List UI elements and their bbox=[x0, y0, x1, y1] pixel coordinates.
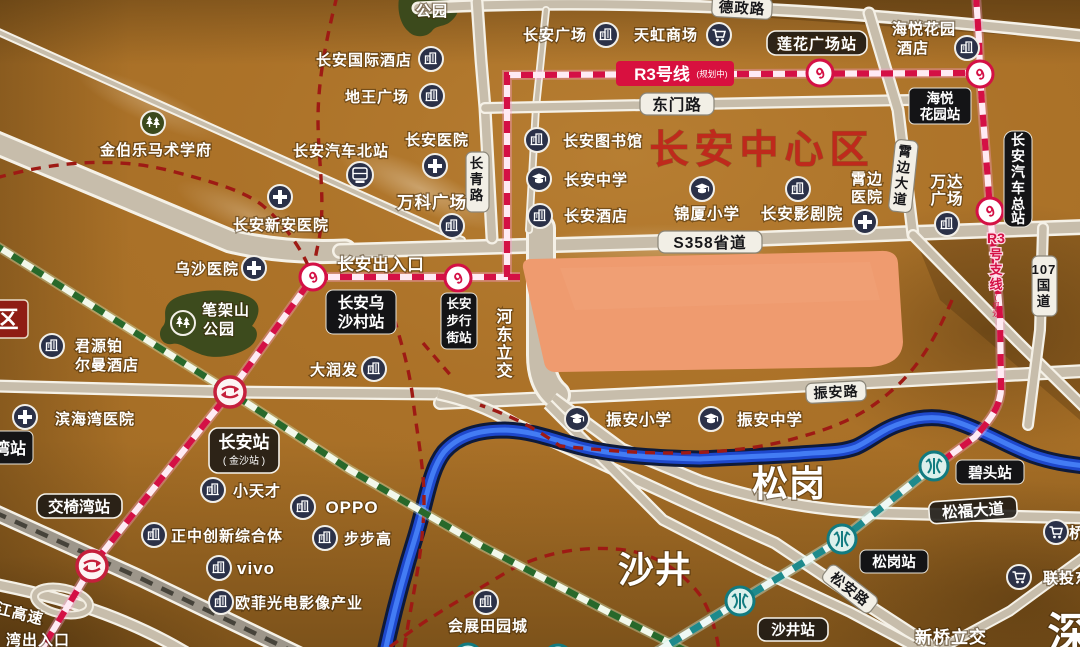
svg-text:长安图书馆: 长安图书馆 bbox=[563, 132, 643, 150]
svg-text:交椅湾站: 交椅湾站 bbox=[48, 497, 111, 516]
svg-text:线: 线 bbox=[989, 277, 1002, 292]
svg-text:小天才: 小天才 bbox=[233, 482, 281, 500]
svg-text:OPPO: OPPO bbox=[325, 498, 378, 517]
svg-text:长安广场: 长安广场 bbox=[523, 26, 587, 44]
svg-text:边: 边 bbox=[895, 159, 912, 176]
svg-text:振安中学: 振安中学 bbox=[737, 410, 803, 429]
svg-text:街站: 街站 bbox=[445, 330, 472, 345]
svg-text:长安中学: 长安中学 bbox=[564, 171, 628, 189]
svg-text:长: 长 bbox=[1011, 132, 1026, 148]
svg-text:酒店: 酒店 bbox=[897, 39, 929, 57]
svg-text:公园: 公园 bbox=[203, 321, 235, 338]
svg-text:立: 立 bbox=[496, 343, 513, 362]
svg-text:德政路: 德政路 bbox=[718, 0, 765, 18]
svg-text:医院: 医院 bbox=[851, 188, 883, 206]
svg-text:路: 路 bbox=[470, 187, 485, 203]
svg-text:联投东: 联投东 bbox=[1043, 569, 1080, 587]
svg-text:碧头站: 碧头站 bbox=[967, 464, 1012, 482]
svg-text:海悦花园: 海悦花园 bbox=[892, 20, 956, 38]
svg-text:沙村站: 沙村站 bbox=[338, 312, 385, 331]
svg-text:滨海湾医院: 滨海湾医院 bbox=[55, 410, 135, 428]
svg-text:霄: 霄 bbox=[897, 143, 913, 159]
svg-text:河: 河 bbox=[496, 307, 513, 326]
svg-text:沙井站: 沙井站 bbox=[771, 621, 815, 639]
svg-text:车: 车 bbox=[1011, 180, 1025, 196]
svg-text:长安影剧院: 长安影剧院 bbox=[761, 204, 844, 223]
svg-text:振安小学: 振安小学 bbox=[606, 410, 672, 429]
svg-text:霄边: 霄边 bbox=[851, 170, 883, 188]
svg-text:东门路: 东门路 bbox=[652, 95, 702, 114]
svg-text:广场: 广场 bbox=[930, 189, 963, 208]
svg-text:长安: 长安 bbox=[446, 296, 471, 311]
svg-text:君源铂: 君源铂 bbox=[75, 337, 123, 355]
svg-text:107: 107 bbox=[1032, 262, 1057, 277]
svg-text:国: 国 bbox=[1037, 278, 1052, 293]
svg-text:长安出入口: 长安出入口 bbox=[337, 254, 425, 274]
svg-text:号: 号 bbox=[989, 247, 1002, 262]
svg-text:R3号线: R3号线 bbox=[634, 64, 690, 84]
svg-text:欧菲光电影像产业: 欧菲光电影像产业 bbox=[235, 594, 363, 612]
svg-text:笔架山: 笔架山 bbox=[202, 301, 250, 319]
svg-text:桥: 桥 bbox=[1069, 524, 1080, 542]
svg-text:汽: 汽 bbox=[1011, 164, 1025, 180]
svg-text:锦厦小学: 锦厦小学 bbox=[674, 204, 740, 223]
svg-text:振安路: 振安路 bbox=[813, 383, 859, 401]
svg-text:东: 东 bbox=[496, 325, 513, 344]
svg-text:安: 安 bbox=[1011, 148, 1025, 164]
svg-text:长: 长 bbox=[470, 155, 485, 171]
svg-text:万科广场: 万科广场 bbox=[396, 192, 467, 212]
svg-text:公园: 公园 bbox=[416, 3, 448, 20]
svg-text:湾站: 湾站 bbox=[0, 439, 26, 458]
svg-text:尔曼酒店: 尔曼酒店 bbox=[75, 356, 139, 374]
svg-text:深: 深 bbox=[1048, 610, 1080, 647]
svg-text:R3: R3 bbox=[987, 230, 1005, 246]
svg-text:金伯乐马术学府: 金伯乐马术学府 bbox=[99, 141, 212, 159]
svg-text:松岗: 松岗 bbox=[752, 463, 826, 504]
svg-text:莲花广场站: 莲花广场站 bbox=[777, 35, 857, 53]
svg-text:长安新安医院: 长安新安医院 bbox=[233, 216, 329, 234]
svg-text:松岗站: 松岗站 bbox=[872, 553, 916, 571]
svg-text:支: 支 bbox=[988, 262, 1003, 277]
svg-text:长安医院: 长安医院 bbox=[405, 131, 469, 149]
svg-text:长安中心区: 长安中心区 bbox=[649, 129, 874, 172]
svg-text:会展田园城: 会展田园城 bbox=[448, 617, 528, 635]
svg-text:长安酒店: 长安酒店 bbox=[564, 207, 628, 225]
svg-text:( 金沙站 ): ( 金沙站 ) bbox=[223, 454, 265, 467]
svg-text:大润发: 大润发 bbox=[310, 361, 358, 379]
svg-text:花园站: 花园站 bbox=[920, 106, 961, 122]
svg-text:沙井: 沙井 bbox=[618, 549, 692, 590]
svg-text:长安国际酒店: 长安国际酒店 bbox=[316, 51, 412, 69]
svg-text:乌沙医院: 乌沙医院 bbox=[175, 260, 239, 278]
svg-text:湾出入口: 湾出入口 bbox=[6, 631, 70, 647]
svg-text:步步高: 步步高 bbox=[344, 530, 392, 548]
svg-text:步行: 步行 bbox=[446, 313, 472, 328]
svg-text:交: 交 bbox=[496, 361, 513, 380]
svg-text:新桥立交: 新桥立交 bbox=[915, 627, 987, 647]
svg-text:道: 道 bbox=[892, 190, 908, 207]
svg-text:青: 青 bbox=[470, 171, 485, 187]
svg-text:站: 站 bbox=[1011, 210, 1025, 226]
svg-text:S358省道: S358省道 bbox=[673, 233, 746, 252]
svg-text:vivo: vivo bbox=[237, 559, 275, 578]
svg-text:划: 划 bbox=[992, 308, 1000, 318]
svg-text:区: 区 bbox=[0, 306, 19, 332]
svg-text:万达: 万达 bbox=[929, 172, 963, 191]
svg-text:道: 道 bbox=[1037, 293, 1052, 309]
svg-text:长安汽车北站: 长安汽车北站 bbox=[293, 142, 389, 160]
svg-text:长安乌: 长安乌 bbox=[338, 293, 385, 312]
svg-text:海悦: 海悦 bbox=[927, 90, 955, 106]
svg-text:长安站: 长安站 bbox=[219, 432, 270, 452]
svg-text:正中创新综合体: 正中创新综合体 bbox=[171, 527, 283, 545]
svg-text:天虹商场: 天虹商场 bbox=[634, 26, 698, 44]
svg-text:地王广场: 地王广场 bbox=[345, 88, 409, 106]
svg-text:大: 大 bbox=[894, 174, 910, 191]
svg-text:(规划中): (规划中) bbox=[696, 69, 727, 79]
